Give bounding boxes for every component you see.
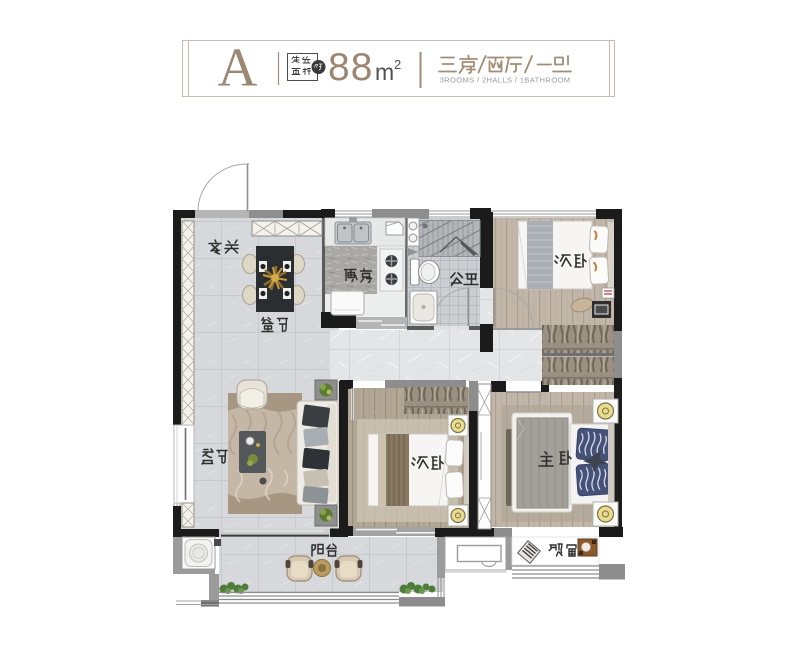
svg-text:A: A — [218, 37, 258, 98]
svg-text:2: 2 — [394, 57, 401, 72]
svg-text:3ROOMS / 2HALLS / 1BATHROOM: 3ROOMS / 2HALLS / 1BATHROOM — [440, 76, 571, 85]
svg-text:88: 88 — [328, 46, 373, 89]
svg-text:m: m — [375, 59, 394, 85]
